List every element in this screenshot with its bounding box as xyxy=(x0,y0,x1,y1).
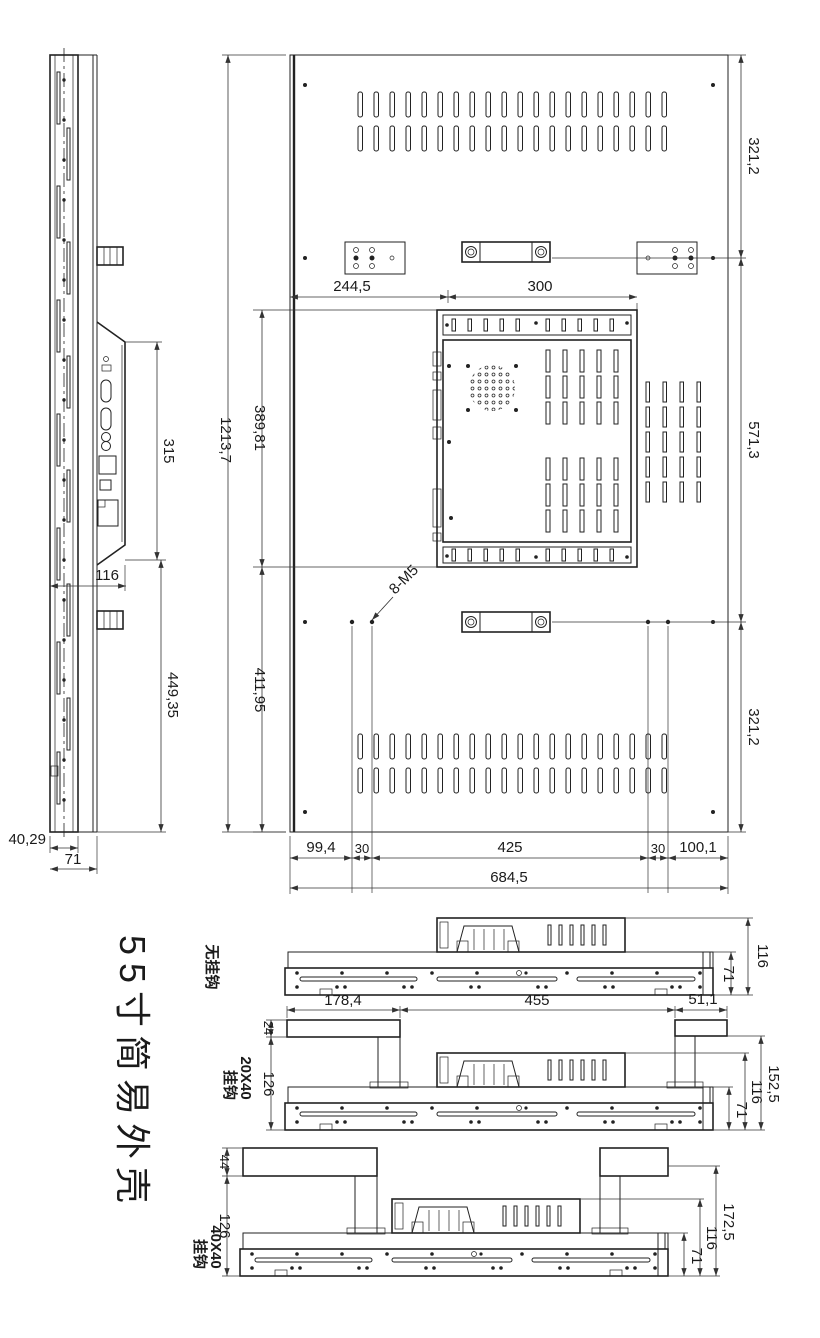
bottom-vent-rows xyxy=(358,734,667,793)
side-top-handle xyxy=(97,247,123,265)
section-label-20x40: 20X40 xyxy=(237,1056,254,1099)
dim-total-width: 684,5 xyxy=(490,869,528,886)
dim-bottom-3: 425 xyxy=(497,839,522,856)
audio-jack xyxy=(102,442,111,451)
drawing-title: 55寸简易外壳 xyxy=(112,935,153,1211)
dim-hook-drop: 126 xyxy=(216,1213,233,1238)
dim-right-middle: 571,3 xyxy=(745,421,762,459)
dim-right-bottom: 321,2 xyxy=(745,708,762,746)
drawing-canvas: 315 116 449,35 40,29 71 xyxy=(0,0,820,1338)
dim-section-height: 116 xyxy=(754,944,771,968)
dim-section-base: 71 xyxy=(733,1102,750,1119)
switch-cutout xyxy=(98,500,118,526)
section-label-no-hook: 无挂钩 xyxy=(203,943,221,989)
top-handle xyxy=(462,242,550,262)
dim-total-height-40x40: 172,5 xyxy=(720,1203,737,1241)
io-ports xyxy=(98,357,118,527)
power-inlet xyxy=(99,456,116,474)
corner-screws xyxy=(303,83,715,814)
back-view: 244,5 300 8-M5 1213,7 389,81 411,95 xyxy=(217,55,762,894)
section-label-20x40-hook: 挂钩 xyxy=(221,1070,239,1100)
bottom-handle xyxy=(462,612,550,632)
vga-port xyxy=(101,408,111,430)
dim-panel-bottom-height: 411,95 xyxy=(251,668,268,713)
section-view-hook-20x40: 20X40 挂钩 178,4 455 51,1 24 126 71 116 15… xyxy=(221,991,782,1130)
central-panel xyxy=(433,310,637,567)
dim-center-span: 455 xyxy=(524,992,549,1009)
side-mount-slots xyxy=(57,72,70,804)
dim-total-depth: 71 xyxy=(65,851,82,868)
dim-left-span: 178,4 xyxy=(324,992,362,1009)
dim-section-base: 71 xyxy=(720,966,737,983)
hook-right-20x40 xyxy=(667,1020,727,1088)
thread-note-group: 8-M5 xyxy=(303,562,715,625)
dim-panel-top-height: 389,81 xyxy=(251,405,268,451)
dim-hook-height: 44 xyxy=(217,1155,232,1169)
dim-right-span: 51,1 xyxy=(688,991,717,1008)
hook-right-40x40 xyxy=(592,1148,668,1234)
dim-bottom-2: 30 xyxy=(355,841,369,856)
section-label-40x40-hook: 挂钩 xyxy=(191,1239,209,1269)
dim-right-top: 321,2 xyxy=(745,137,762,175)
dim-bottom-4: 30 xyxy=(651,841,665,856)
fan-grille xyxy=(469,365,515,411)
io-bulge xyxy=(97,322,125,565)
side-bottom-handle xyxy=(97,611,123,629)
panel-vents-upper xyxy=(546,350,618,424)
section-view-hook-40x40: 40X40 挂钩 44 126 71 116 172,5 xyxy=(191,1148,737,1276)
dim-hook-height: 24 xyxy=(261,1021,276,1035)
hook-left-20x40 xyxy=(287,1020,408,1088)
dim-section-height: 116 xyxy=(703,1226,720,1250)
dim-section-height: 116 xyxy=(748,1080,765,1104)
dim-total-height: 1213,7 xyxy=(217,417,234,463)
top-left-bracket xyxy=(345,242,405,274)
audio-jack xyxy=(102,433,111,442)
hook-left-40x40 xyxy=(243,1148,385,1234)
dim-lower-height: 449,35 xyxy=(164,672,181,718)
dim-hook-drop: 126 xyxy=(260,1071,277,1096)
side-view: 315 116 449,35 40,29 71 xyxy=(8,48,181,874)
right-vent-grid xyxy=(646,382,701,502)
dim-io-height: 315 xyxy=(160,438,177,463)
dim-bottom-5: 100,1 xyxy=(679,839,717,856)
top-vent-rows xyxy=(358,92,667,151)
panel-vents-lower xyxy=(546,458,618,532)
drawing-sheet: 315 116 449,35 40,29 71 xyxy=(0,0,820,1338)
dim-section-base: 71 xyxy=(688,1248,705,1265)
dim-front-depth: 40,29 xyxy=(8,831,46,848)
section-view-no-hook: 无挂钩 116 71 xyxy=(203,918,771,995)
dim-bottom-1: 99,4 xyxy=(306,839,335,856)
dim-handle-span: 300 xyxy=(527,278,552,295)
dim-bracket-offset: 244,5 xyxy=(333,278,371,295)
vga-port xyxy=(101,380,111,402)
dim-io-offset: 116 xyxy=(95,567,119,584)
dim-total-height-20x40: 152,5 xyxy=(765,1065,782,1103)
